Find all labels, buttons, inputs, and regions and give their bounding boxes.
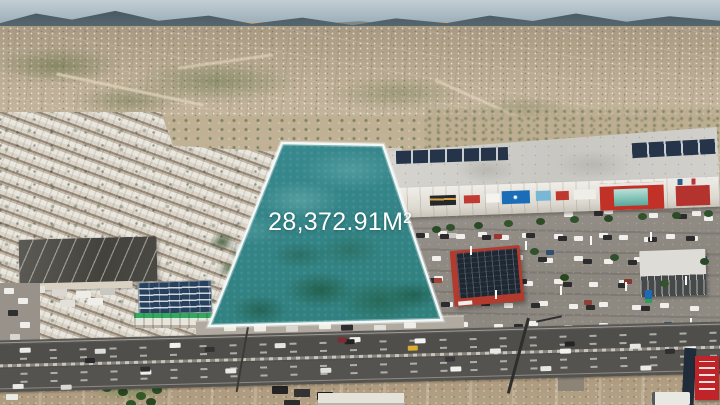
parked-car [6, 394, 18, 400]
parked-cars-colored [494, 234, 502, 239]
parked-dark-trucks [272, 386, 288, 394]
white-trailer [652, 392, 690, 405]
bottom-building-roof [318, 393, 404, 405]
storefront-sign-dark [430, 195, 456, 206]
red-retail-building [450, 245, 525, 307]
solar-panel-canopy [137, 280, 212, 316]
warehouse-building [18, 236, 157, 285]
parked-vans [224, 325, 236, 331]
storefront-sign-lightblue [536, 191, 551, 202]
aerial-photo: 28,372.91M² [0, 0, 720, 405]
red-car [337, 337, 346, 342]
storefront-sign-red [464, 195, 480, 204]
cinema-glass-front [614, 188, 649, 206]
red-billboard [695, 356, 719, 400]
storefront-sign-white [486, 193, 500, 202]
parked-cars [4, 288, 14, 294]
storefront-sign-white [574, 189, 596, 200]
light-poles [470, 246, 472, 255]
storefront-sign-red-large [676, 185, 711, 206]
monument-sign [645, 290, 652, 303]
storefront-sign-red [556, 191, 569, 200]
small-structure [558, 377, 584, 391]
yellow-taxi [408, 345, 418, 350]
area-label: 28,372.91M² [250, 208, 430, 237]
palm-trees [446, 224, 455, 231]
highway-cars-dark [85, 358, 95, 363]
highway-cars-light [20, 348, 31, 353]
storefront-sign-blue [502, 190, 530, 204]
